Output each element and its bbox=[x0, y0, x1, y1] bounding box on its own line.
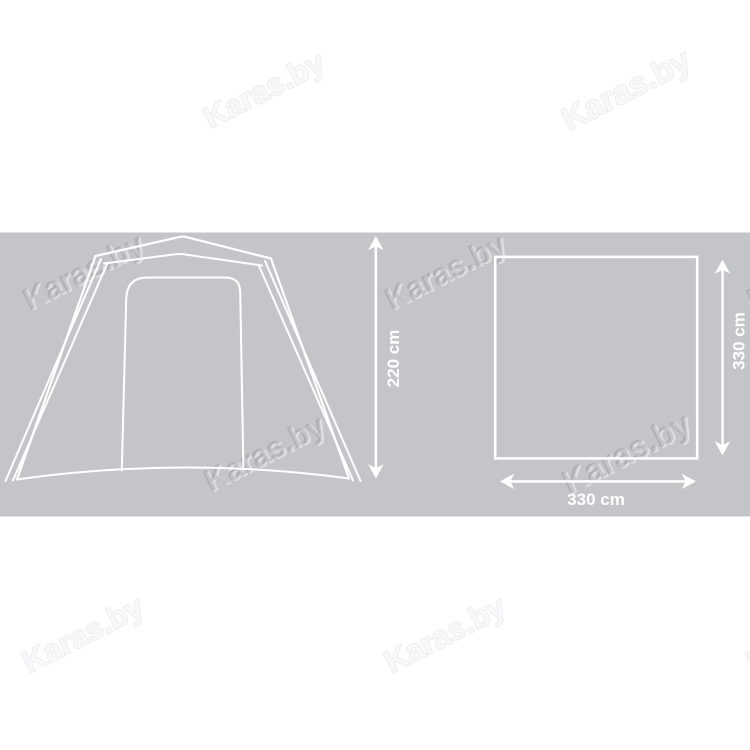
svg-text:220 cm: 220 cm bbox=[384, 330, 403, 388]
svg-text:330 cm: 330 cm bbox=[729, 312, 748, 370]
svg-text:330 cm: 330 cm bbox=[567, 490, 625, 509]
